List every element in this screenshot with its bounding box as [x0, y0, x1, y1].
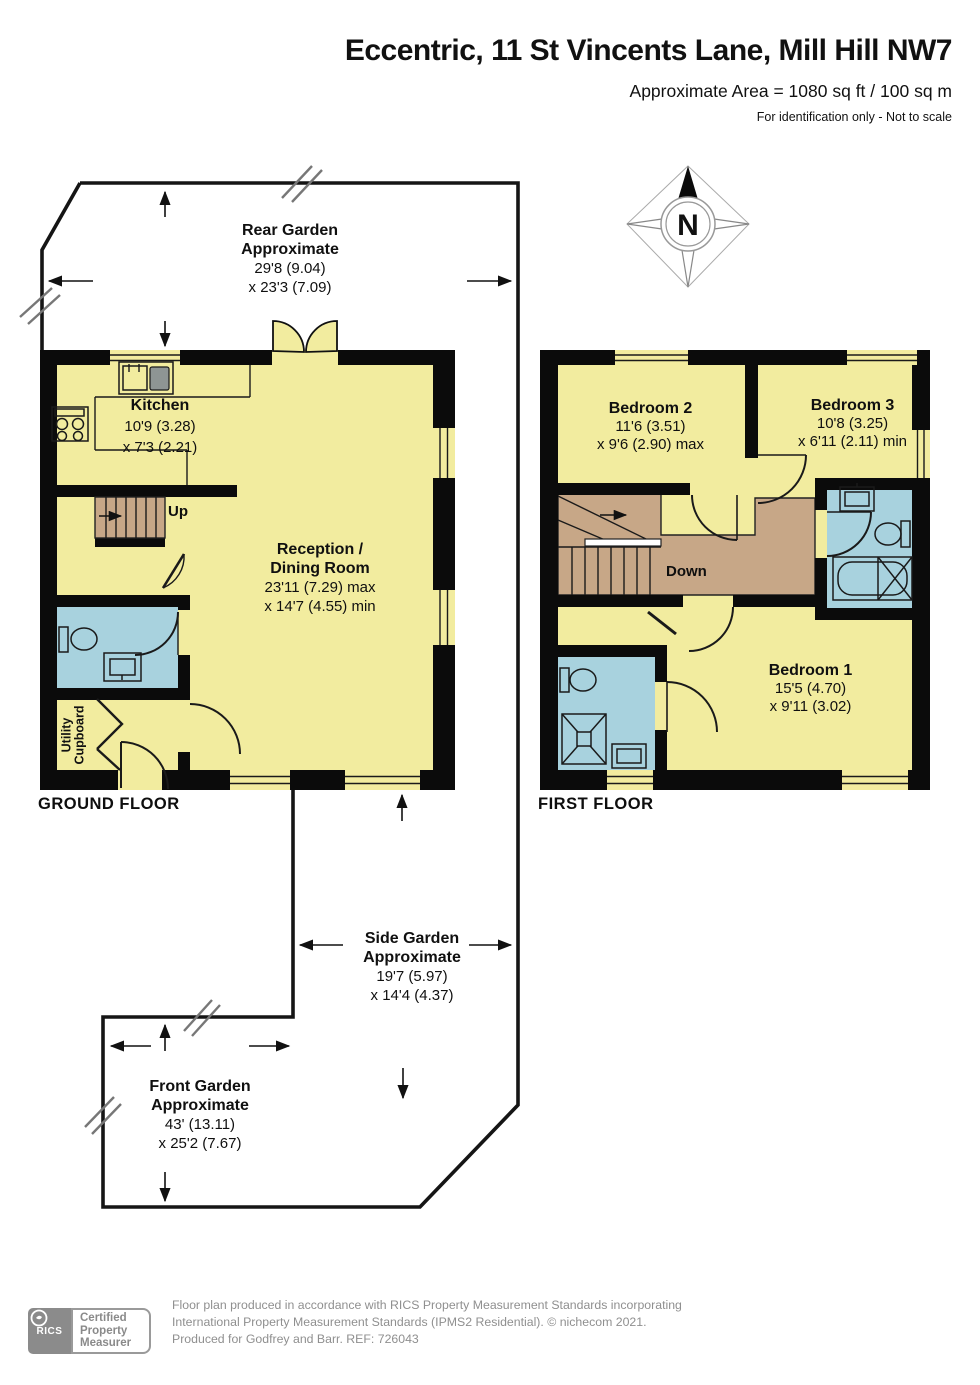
first-floor-title: FIRST FLOOR — [538, 795, 654, 814]
reception-label: Reception / Dining Room 23'11 (7.29) max… — [232, 540, 408, 616]
side-garden-label: Side Garden Approximate 19'7 (5.97) x 14… — [322, 929, 502, 1005]
floorplan-page: Eccentric, 11 St Vincents Lane, Mill Hil… — [0, 0, 980, 1385]
front-garden-label: Front Garden Approximate 43' (13.11) x 2… — [110, 1077, 290, 1153]
rics-logo: RICS — [28, 1308, 71, 1354]
rear-garden-label: Rear Garden Approximate 29'8 (9.04) x 23… — [200, 221, 380, 297]
bedroom1-label: Bedroom 1 15'5 (4.70) x 9'11 (3.02) — [728, 662, 893, 716]
bedroom2-label: Bedroom 2 11'6 (3.51) x 9'6 (2.90) max — [563, 400, 738, 454]
certified-property-measurer-badge: Certified Property Measurer — [71, 1308, 151, 1354]
compass-icon: N — [627, 166, 749, 287]
stairs-down-label: Down — [666, 563, 707, 580]
footer: RICS Certified Property Measurer Floor p… — [0, 1296, 980, 1366]
compass-north-letter: N — [677, 209, 699, 242]
kitchen-label: Kitchen 10'9 (3.28) x 7'3 (2.21) — [85, 395, 235, 458]
utility-cupboard-label: Utility Cupboard — [36, 700, 112, 770]
rics-lion-icon — [28, 1308, 50, 1330]
footer-fine-print: Floor plan produced in accordance with R… — [172, 1297, 682, 1347]
ground-floor-title: GROUND FLOOR — [38, 795, 180, 814]
bedroom3-label: Bedroom 3 10'8 (3.25) x 6'11 (2.11) min — [765, 397, 940, 451]
stairs-up — [95, 497, 165, 538]
stairs-up-label: Up — [168, 503, 188, 520]
